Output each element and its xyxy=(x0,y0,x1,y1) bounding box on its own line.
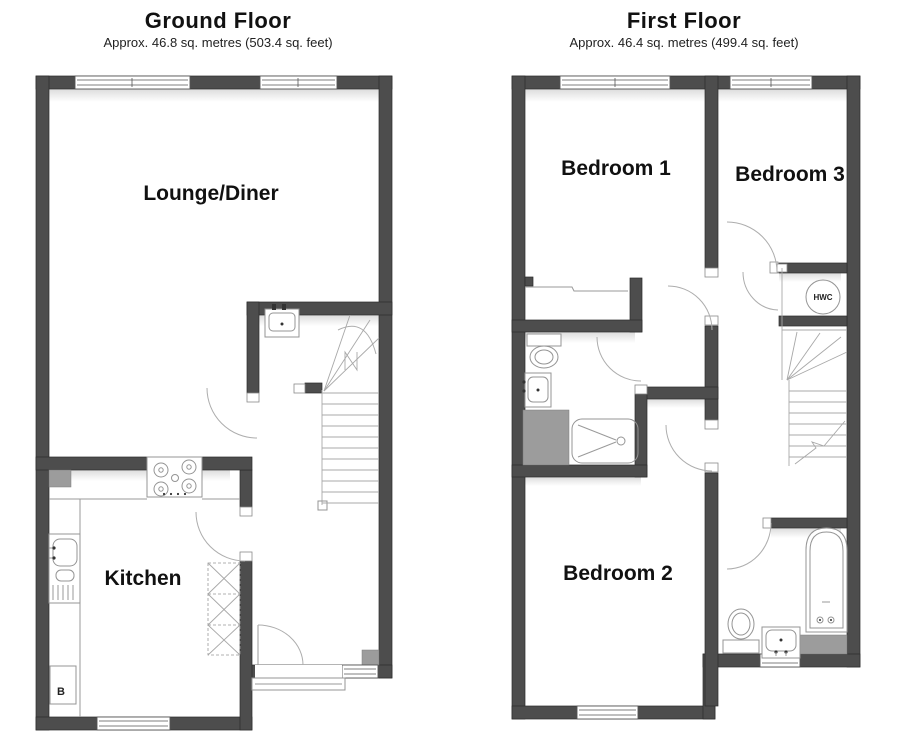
cloakroom-basin xyxy=(265,304,299,337)
ground-floor-walls xyxy=(36,76,392,730)
gray-block xyxy=(362,650,379,665)
hwc-cylinder: HWC xyxy=(806,280,840,314)
toilet xyxy=(527,334,561,368)
wall-shadow xyxy=(718,89,847,102)
door-jamb xyxy=(240,552,252,561)
toilet xyxy=(723,609,759,653)
wall-shadow xyxy=(49,89,379,102)
basin xyxy=(762,627,800,658)
wall-shadow xyxy=(779,273,841,282)
window xyxy=(730,76,812,89)
stair-break-mark xyxy=(795,421,845,464)
first-floor-plan: HWC xyxy=(512,76,860,719)
floorplan-canvas: Ground Floor Approx. 46.8 sq. metres (50… xyxy=(0,0,905,740)
front-door xyxy=(252,625,345,690)
door-jamb xyxy=(294,384,305,393)
wall-shadow xyxy=(637,399,715,408)
window xyxy=(260,76,337,89)
gray-block xyxy=(798,635,847,654)
boiler-cupboard: B xyxy=(50,666,76,704)
ground-floor-plan: B Lounge/Diner Kitchen xyxy=(36,76,392,730)
room-label-bedroom2: Bedroom 2 xyxy=(563,562,673,585)
window xyxy=(75,76,190,89)
bathtub xyxy=(806,528,847,632)
door-swing-arc xyxy=(727,222,777,272)
door-jamb xyxy=(763,518,771,528)
room-label-lounge-diner: Lounge/Diner xyxy=(143,182,278,205)
hob xyxy=(147,457,202,497)
kitchen-worktop xyxy=(49,499,240,717)
kitchen-unit-hatched xyxy=(208,563,240,655)
room-label-bedroom3: Bedroom 3 xyxy=(735,163,845,186)
door-jamb xyxy=(240,507,252,516)
boiler-label: B xyxy=(57,686,65,698)
wall-shadow xyxy=(512,477,641,486)
door-swing-arc xyxy=(258,625,303,665)
gray-block xyxy=(523,410,569,465)
door-jamb xyxy=(705,268,718,277)
room-label-kitchen: Kitchen xyxy=(104,567,181,590)
basin xyxy=(522,373,551,407)
wardrobe-front xyxy=(525,287,628,291)
window xyxy=(342,665,378,678)
window xyxy=(97,717,170,730)
door-swing-arc xyxy=(597,337,641,381)
window xyxy=(577,706,638,719)
gray-block xyxy=(49,470,71,487)
wall-shadow xyxy=(525,89,705,102)
wall-shadow xyxy=(49,470,230,481)
door-jamb xyxy=(247,393,259,402)
window xyxy=(560,76,670,89)
door-swing-arc xyxy=(727,523,771,569)
room-label-bedroom1: Bedroom 1 xyxy=(561,157,671,180)
door-swing-arc xyxy=(743,272,778,310)
kitchen-sink xyxy=(49,534,80,603)
hwc-label: HWC xyxy=(813,293,832,302)
door-swing-arc xyxy=(196,512,245,561)
staircase-ground xyxy=(318,315,379,510)
door-jamb xyxy=(635,385,647,394)
shower xyxy=(572,419,638,463)
door-jamb xyxy=(705,420,718,429)
floorplan-drawing: B Lounge/Diner Kitchen xyxy=(0,0,905,740)
